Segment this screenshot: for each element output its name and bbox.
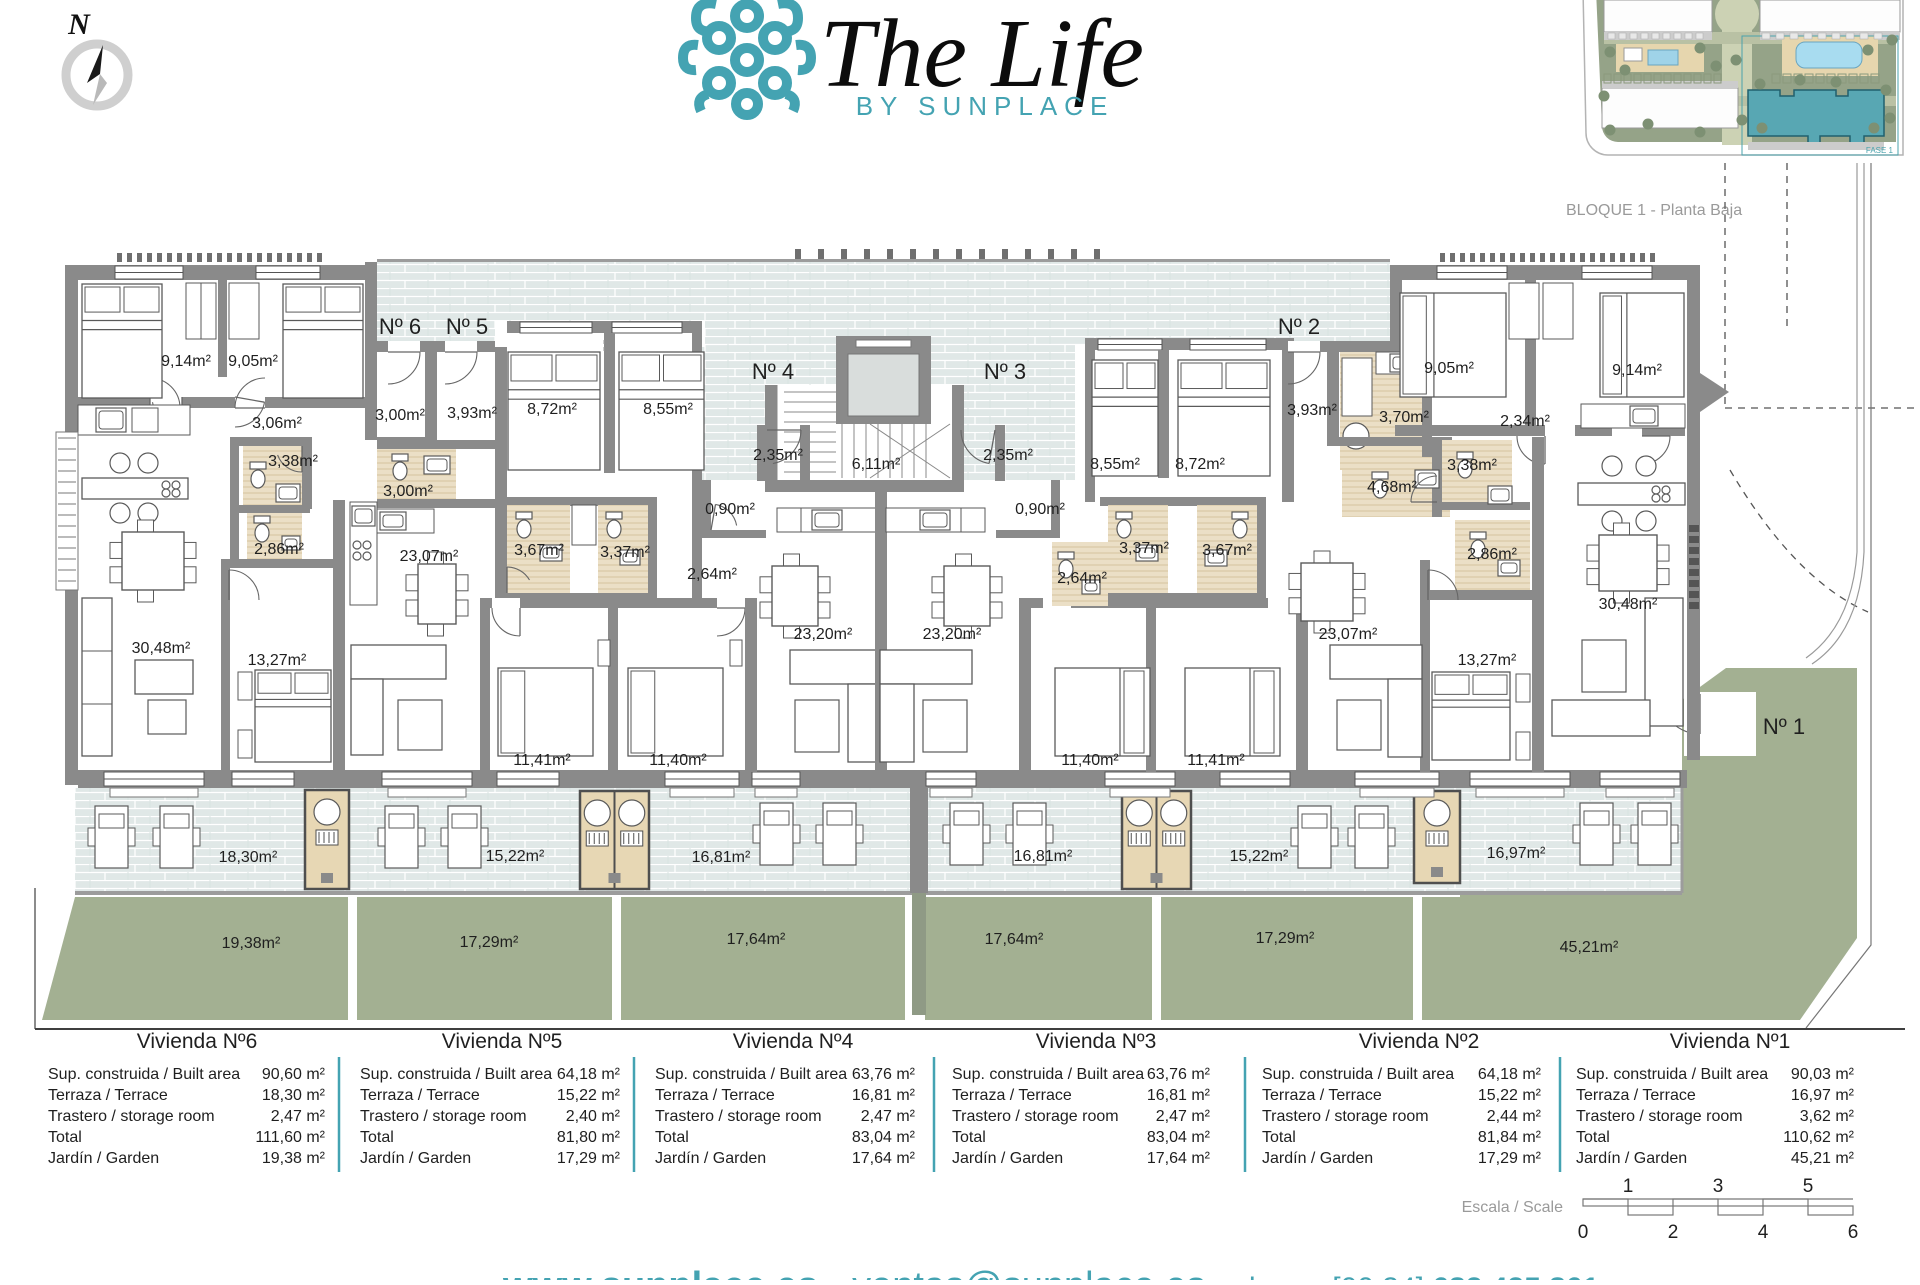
svg-text:N: N — [67, 8, 91, 41]
svg-text:45,21m²: 45,21m² — [1560, 939, 1619, 956]
svg-text:19,38 m²: 19,38 m² — [262, 1150, 326, 1167]
svg-text:8,55m²: 8,55m² — [1090, 456, 1140, 473]
svg-text:17,64 m²: 17,64 m² — [1147, 1150, 1211, 1167]
svg-text:Sup. construida / Built area: Sup. construida / Built area — [48, 1066, 240, 1083]
svg-text:17,29 m²: 17,29 m² — [1478, 1150, 1542, 1167]
svg-text:23,07m²: 23,07m² — [400, 548, 459, 565]
svg-text:23,07m²: 23,07m² — [1319, 626, 1378, 643]
svg-text:Nº 4: Nº 4 — [752, 359, 794, 384]
svg-text:64,18 m²: 64,18 m² — [1478, 1066, 1542, 1083]
svg-text:23,20m²: 23,20m² — [923, 626, 982, 643]
svg-text:9,14m²: 9,14m² — [161, 353, 211, 370]
svg-text:2,86m²: 2,86m² — [1467, 546, 1517, 563]
svg-text:3: 3 — [1713, 1176, 1724, 1197]
svg-text:3,37m²: 3,37m² — [1119, 540, 1169, 557]
svg-text:3,00m²: 3,00m² — [375, 407, 425, 424]
svg-text:Vivienda Nº3: Vivienda Nº3 — [1036, 1030, 1157, 1053]
svg-text:Nº 6: Nº 6 — [379, 314, 421, 339]
svg-text:Terraza / Terrace: Terraza / Terrace — [1576, 1087, 1696, 1104]
svg-text:Total: Total — [48, 1129, 82, 1146]
svg-text:2,64m²: 2,64m² — [1057, 570, 1107, 587]
svg-text:Trastero / storage room: Trastero / storage room — [1262, 1108, 1429, 1125]
svg-text:2,35m²: 2,35m² — [983, 447, 1033, 464]
svg-text:3,37m²: 3,37m² — [600, 544, 650, 561]
svg-text:16,97m²: 16,97m² — [1487, 845, 1546, 862]
svg-text:19,38m²: 19,38m² — [222, 935, 281, 952]
svg-text:Nº 3: Nº 3 — [984, 359, 1026, 384]
svg-text:BY SUNPLACE: BY SUNPLACE — [856, 91, 1115, 121]
svg-text:63,76 m²: 63,76 m² — [1147, 1066, 1211, 1083]
svg-text:Total: Total — [1576, 1129, 1610, 1146]
svg-text:30,48m²: 30,48m² — [1599, 596, 1658, 613]
svg-text:3,93m²: 3,93m² — [447, 405, 497, 422]
svg-text:11,40m²: 11,40m² — [1061, 752, 1119, 769]
svg-text:Sup. construida / Built area: Sup. construida / Built area — [1262, 1066, 1454, 1083]
svg-text:11,41m²: 11,41m² — [1187, 752, 1245, 769]
svg-text:Vivienda Nº1: Vivienda Nº1 — [1670, 1030, 1791, 1053]
svg-text:Sup. construida / Built area: Sup. construida / Built area — [655, 1066, 847, 1083]
svg-text:23,20m²: 23,20m² — [794, 626, 853, 643]
svg-text:Jardín / Garden: Jardín / Garden — [48, 1150, 159, 1167]
svg-text:6: 6 — [1848, 1222, 1859, 1243]
svg-text:11,40m²: 11,40m² — [649, 752, 707, 769]
svg-text:Jardín / Garden: Jardín / Garden — [952, 1150, 1063, 1167]
svg-text:2,47 m²: 2,47 m² — [271, 1108, 326, 1125]
svg-text:2,34m²: 2,34m² — [1500, 413, 1550, 430]
svg-text:Trastero / storage room: Trastero / storage room — [655, 1108, 822, 1125]
svg-text:15,22 m²: 15,22 m² — [557, 1087, 621, 1104]
svg-text:111,60 m²: 111,60 m² — [255, 1129, 325, 1146]
svg-text:0: 0 — [1578, 1222, 1589, 1243]
svg-text:Trastero / storage room: Trastero / storage room — [952, 1108, 1119, 1125]
svg-text:8,72m²: 8,72m² — [527, 401, 577, 418]
svg-text:63,76 m²: 63,76 m² — [852, 1066, 916, 1083]
svg-text:16,81 m²: 16,81 m² — [852, 1087, 916, 1104]
svg-text:2,40 m²: 2,40 m² — [566, 1108, 621, 1125]
svg-text:17,29m²: 17,29m² — [460, 934, 519, 951]
svg-text:Total: Total — [360, 1129, 394, 1146]
svg-text:16,81m²: 16,81m² — [1014, 848, 1073, 865]
svg-text:Jardín / Garden: Jardín / Garden — [360, 1150, 471, 1167]
svg-text:1: 1 — [1623, 1176, 1634, 1197]
svg-text:3,93m²: 3,93m² — [1287, 402, 1337, 419]
svg-text:2,44 m²: 2,44 m² — [1487, 1108, 1542, 1125]
svg-text:83,04 m²: 83,04 m² — [852, 1129, 916, 1146]
svg-text:81,80 m²: 81,80 m² — [557, 1129, 621, 1146]
svg-text:110,62 m²: 110,62 m² — [1783, 1129, 1855, 1146]
svg-text:3,62 m²: 3,62 m² — [1800, 1108, 1855, 1125]
svg-text:9,14m²: 9,14m² — [1612, 362, 1662, 379]
svg-text:Sup. construida / Built area: Sup. construida / Built area — [360, 1066, 552, 1083]
svg-text:3,70m²: 3,70m² — [1379, 409, 1429, 426]
svg-text:Escala / Scale: Escala / Scale — [1462, 1199, 1563, 1216]
svg-text:17,29 m²: 17,29 m² — [557, 1150, 621, 1167]
svg-text:Sup. construida / Built area: Sup. construida / Built area — [952, 1066, 1144, 1083]
svg-text:5: 5 — [1803, 1176, 1814, 1197]
svg-text:3,00m²: 3,00m² — [383, 483, 433, 500]
svg-text:18,30 m²: 18,30 m² — [262, 1087, 326, 1104]
svg-text:83,04 m²: 83,04 m² — [1147, 1129, 1211, 1146]
svg-text:4: 4 — [1758, 1222, 1769, 1243]
svg-text:2,47 m²: 2,47 m² — [1156, 1108, 1211, 1125]
svg-text:11,41m²: 11,41m² — [513, 752, 571, 769]
svg-text:64,18 m²: 64,18 m² — [557, 1066, 621, 1083]
svg-text:Vivienda Nº5: Vivienda Nº5 — [442, 1030, 563, 1053]
svg-text:Terraza / Terrace: Terraza / Terrace — [952, 1087, 1072, 1104]
svg-text:3,67m²: 3,67m² — [514, 542, 564, 559]
svg-text:Nº 1: Nº 1 — [1763, 714, 1805, 739]
svg-text:2,64m²: 2,64m² — [687, 566, 737, 583]
svg-text:Trastero / storage room: Trastero / storage room — [48, 1108, 215, 1125]
svg-text:9,05m²: 9,05m² — [1424, 360, 1474, 377]
svg-text:Sup. construida / Built area: Sup. construida / Built area — [1576, 1066, 1768, 1083]
svg-text:Jardín / Garden: Jardín / Garden — [1262, 1150, 1373, 1167]
svg-text:0,90m²: 0,90m² — [705, 501, 755, 518]
svg-text:30,48m²: 30,48m² — [132, 640, 191, 657]
svg-text:18,30m²: 18,30m² — [219, 849, 278, 866]
svg-text:0,90m²: 0,90m² — [1015, 501, 1065, 518]
svg-text:3,38m²: 3,38m² — [268, 453, 318, 470]
svg-text:2,47 m²: 2,47 m² — [861, 1108, 916, 1125]
svg-text:Total: Total — [1262, 1129, 1296, 1146]
svg-text:Jardín / Garden: Jardín / Garden — [1576, 1150, 1687, 1167]
svg-text:Vivienda Nº2: Vivienda Nº2 — [1359, 1030, 1480, 1053]
svg-text:2,35m²: 2,35m² — [753, 447, 803, 464]
svg-text:4,68m²: 4,68m² — [1367, 479, 1417, 496]
svg-text:Total: Total — [655, 1129, 689, 1146]
svg-text:2: 2 — [1668, 1222, 1679, 1243]
svg-text:FASE 1: FASE 1 — [1866, 146, 1894, 155]
svg-text:90,03 m²: 90,03 m² — [1791, 1066, 1855, 1083]
svg-text:17,64m²: 17,64m² — [985, 931, 1044, 948]
svg-text:Terraza / Terrace: Terraza / Terrace — [655, 1087, 775, 1104]
svg-text:13,27m²: 13,27m² — [1458, 652, 1517, 669]
svg-text:16,97 m²: 16,97 m² — [1791, 1087, 1855, 1104]
svg-text:Jardín / Garden: Jardín / Garden — [655, 1150, 766, 1167]
svg-text:17,64 m²: 17,64 m² — [852, 1150, 916, 1167]
svg-text:Terraza / Terrace: Terraza / Terrace — [360, 1087, 480, 1104]
svg-text:3,38m²: 3,38m² — [1447, 457, 1497, 474]
svg-text:15,22 m²: 15,22 m² — [1478, 1087, 1542, 1104]
svg-text:81,84 m²: 81,84 m² — [1478, 1129, 1542, 1146]
svg-text:Nº 5: Nº 5 — [446, 314, 488, 339]
svg-text:Vivienda Nº4: Vivienda Nº4 — [733, 1030, 854, 1053]
svg-text:15,22m²: 15,22m² — [486, 848, 545, 865]
svg-text:3,67m²: 3,67m² — [1202, 542, 1252, 559]
svg-text:3,06m²: 3,06m² — [252, 415, 302, 432]
svg-text:Trastero / storage room: Trastero / storage room — [1576, 1108, 1743, 1125]
svg-text:17,29m²: 17,29m² — [1256, 930, 1315, 947]
svg-text:13,27m²: 13,27m² — [248, 652, 307, 669]
svg-text:16,81m²: 16,81m² — [692, 849, 751, 866]
svg-text:Vivienda Nº6: Vivienda Nº6 — [137, 1030, 258, 1053]
svg-text:8,55m²: 8,55m² — [643, 401, 693, 418]
svg-text:Terraza / Terrace: Terraza / Terrace — [1262, 1087, 1382, 1104]
svg-text:Nº 2: Nº 2 — [1278, 314, 1320, 339]
svg-text:Trastero / storage room: Trastero / storage room — [360, 1108, 527, 1125]
svg-text:90,60 m²: 90,60 m² — [262, 1066, 326, 1083]
svg-text:45,21 m²: 45,21 m² — [1791, 1150, 1855, 1167]
svg-text:17,64m²: 17,64m² — [727, 931, 786, 948]
svg-text:9,05m²: 9,05m² — [228, 353, 278, 370]
svg-text:Total: Total — [952, 1129, 986, 1146]
svg-text:BLOQUE 1 - Planta Baja: BLOQUE 1 - Planta Baja — [1566, 202, 1742, 219]
svg-text:15,22m²: 15,22m² — [1230, 848, 1289, 865]
svg-text:8,72m²: 8,72m² — [1175, 456, 1225, 473]
svg-text:Terraza / Terrace: Terraza / Terrace — [48, 1087, 168, 1104]
svg-text:2,86m²: 2,86m² — [254, 541, 304, 558]
svg-text:16,81 m²: 16,81 m² — [1147, 1087, 1211, 1104]
svg-text:6,11m²: 6,11m² — [852, 456, 901, 473]
